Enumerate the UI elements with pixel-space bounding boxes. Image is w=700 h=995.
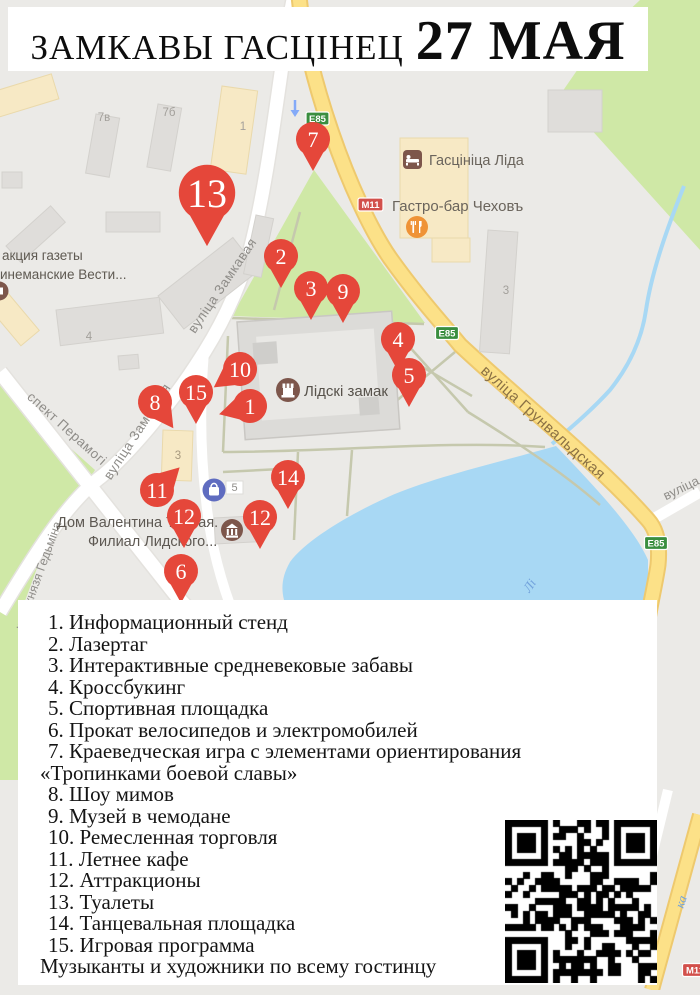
badge-e85-south: E85 <box>645 537 668 550</box>
poster-header: ЗАМКАВЫ ГАСЦІНЕЦ 27 МАЯ <box>8 7 648 71</box>
svg-text:E85: E85 <box>648 539 666 550</box>
building-lida-castle <box>237 311 400 440</box>
svg-text:1: 1 <box>245 394 256 419</box>
svg-text:4: 4 <box>393 327 404 352</box>
legend-item-7-continued: «Тропинками боевой славы» <box>40 763 657 785</box>
legend-item-7: 7. Краеведческая игра с элементами ориен… <box>48 741 657 763</box>
svg-text:M11: M11 <box>686 966 700 977</box>
restaurant-icon <box>406 216 428 238</box>
legend-item-8: 8. Шоу мимов <box>48 784 657 806</box>
newspaper-label-line2: инеманские Вести... <box>0 267 126 282</box>
svg-text:11: 11 <box>146 478 167 503</box>
museum-label-line2: Филиал Лидского... <box>88 534 217 550</box>
svg-text:9: 9 <box>338 279 349 304</box>
svg-text:10: 10 <box>229 357 251 382</box>
svg-text:M11: M11 <box>362 200 381 211</box>
castle-label: Лідскі замак <box>304 383 388 400</box>
legend-item-2: 2. Лазертаг <box>48 634 657 656</box>
svg-text:1: 1 <box>240 121 246 133</box>
qr-code <box>505 820 657 983</box>
svg-text:7: 7 <box>308 127 319 152</box>
legend-item-4: 4. Кроссбукинг <box>48 677 657 699</box>
legend-item-6: 6. Прокат велосипедов и электромобилей <box>48 720 657 742</box>
legend-item-1: 1. Информационный стенд <box>48 612 657 634</box>
poster-title: ЗАМКАВЫ ГАСЦІНЕЦ <box>30 28 403 68</box>
svg-text:15: 15 <box>185 380 207 405</box>
svg-text:3: 3 <box>175 450 181 462</box>
svg-text:6: 6 <box>176 559 187 584</box>
event-map-poster: { "header": { "title": "ЗАМКАВЫ ГАСЦІНЕЦ… <box>0 0 700 990</box>
legend-item-3: 3. Интерактивные средневековые забавы <box>48 655 657 677</box>
badge-m11: M11 <box>358 198 383 211</box>
hotel-label: Гасцініца Ліда <box>429 153 525 169</box>
restaurant-label: Гастро-бар Чеховъ <box>392 198 523 215</box>
poster-date: 27 МАЯ <box>416 9 626 73</box>
svg-text:5: 5 <box>404 363 415 388</box>
hotel-poi[interactable]: Гасцініца Ліда <box>403 150 525 169</box>
svg-text:E85: E85 <box>439 329 457 340</box>
svg-text:12: 12 <box>249 505 271 530</box>
svg-text:5: 5 <box>231 482 237 494</box>
newspaper-label-line1: акция газеты <box>2 248 83 263</box>
legend-item-5: 5. Спортивная площадка <box>48 698 657 720</box>
badge-e85-mid: E85 <box>436 327 459 340</box>
svg-text:3: 3 <box>306 276 317 301</box>
svg-text:12: 12 <box>173 504 195 529</box>
svg-text:8: 8 <box>150 390 161 415</box>
svg-text:7в: 7в <box>98 112 111 124</box>
svg-text:3: 3 <box>503 285 509 297</box>
svg-text:13: 13 <box>187 171 227 216</box>
svg-text:7б: 7б <box>163 107 176 119</box>
svg-text:4: 4 <box>86 331 93 343</box>
svg-text:14: 14 <box>277 465 299 490</box>
badge-m11-south: M11 <box>683 964 700 977</box>
svg-text:2: 2 <box>276 244 287 269</box>
